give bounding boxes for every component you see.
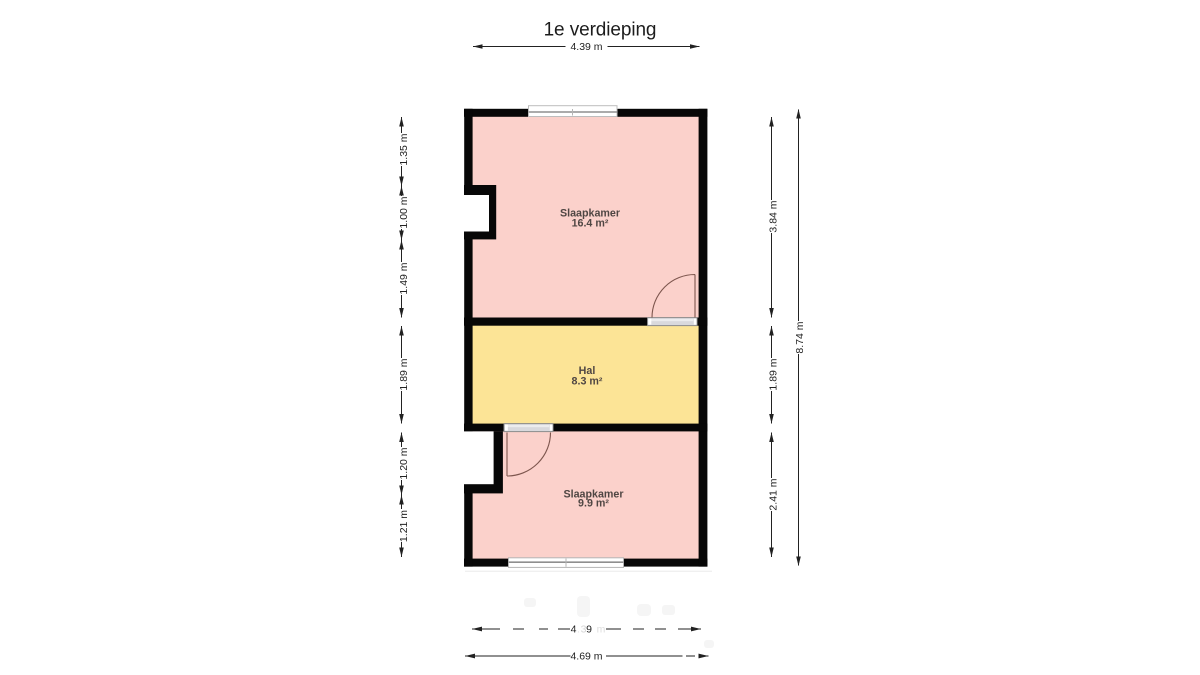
svg-text:4.69 m: 4.69 m [570,651,602,663]
svg-text:m: m [597,624,606,636]
svg-text:1.21 m: 1.21 m [398,510,410,542]
svg-text:1.89 m: 1.89 m [398,358,410,390]
svg-text:1.20 m: 1.20 m [398,447,410,479]
svg-text:.: . [577,624,580,636]
svg-text:9.9 m²: 9.9 m² [578,498,609,510]
svg-text:8.74 m: 8.74 m [794,321,806,353]
svg-text:9: 9 [586,624,592,636]
svg-text:8.3 m²: 8.3 m² [572,376,603,388]
svg-text:1.00 m: 1.00 m [398,196,410,228]
svg-text:3.84 m: 3.84 m [768,200,780,232]
svg-text:4.39 m: 4.39 m [570,41,602,53]
svg-text:16.4 m²: 16.4 m² [572,218,609,230]
svg-text:1.35 m: 1.35 m [398,133,410,165]
svg-text:4: 4 [571,624,577,636]
svg-text:1.89 m: 1.89 m [768,358,780,390]
svg-text:2.41 m: 2.41 m [768,478,780,510]
svg-text:1e verdieping: 1e verdieping [544,20,657,41]
svg-text:1.49 m: 1.49 m [398,262,410,294]
